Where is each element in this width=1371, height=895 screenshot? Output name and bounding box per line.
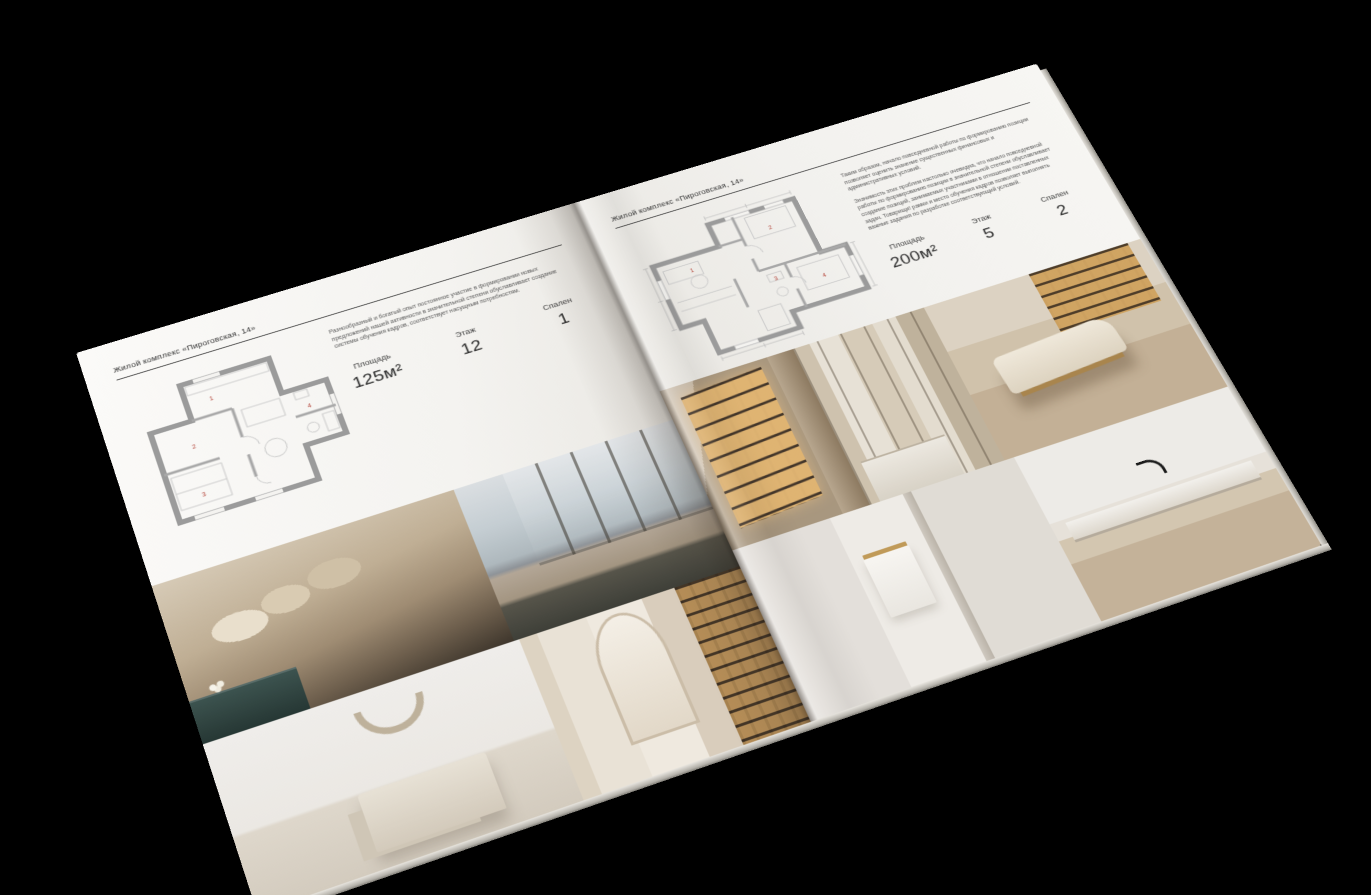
plan-room-marker: 1 xyxy=(690,269,695,275)
floor-plan-1-bedroom: 1 2 3 4 xyxy=(121,333,369,538)
black-backdrop: Жилой комплекс «Пироговская, 14» xyxy=(0,0,1371,895)
plan-room-marker: 2 xyxy=(192,444,197,450)
plan-room-marker: 4 xyxy=(307,403,313,409)
stat-bedrooms: Спален 2 xyxy=(1030,186,1089,226)
magazine-spread: Жилой комплекс «Пироговская, 14» xyxy=(76,64,1321,895)
plan-room-marker: 3 xyxy=(202,492,207,498)
stat-area: Площадь 200м² xyxy=(882,231,942,272)
stat-area: Площадь 125м² xyxy=(346,350,406,393)
stat-floor: Этаж 12 xyxy=(440,321,500,363)
plan-room-marker: 2 xyxy=(768,225,773,231)
plan-room-marker: 1 xyxy=(209,396,214,402)
stat-floor: Этаж 5 xyxy=(957,208,1017,248)
plan-room-marker: 4 xyxy=(822,273,828,279)
